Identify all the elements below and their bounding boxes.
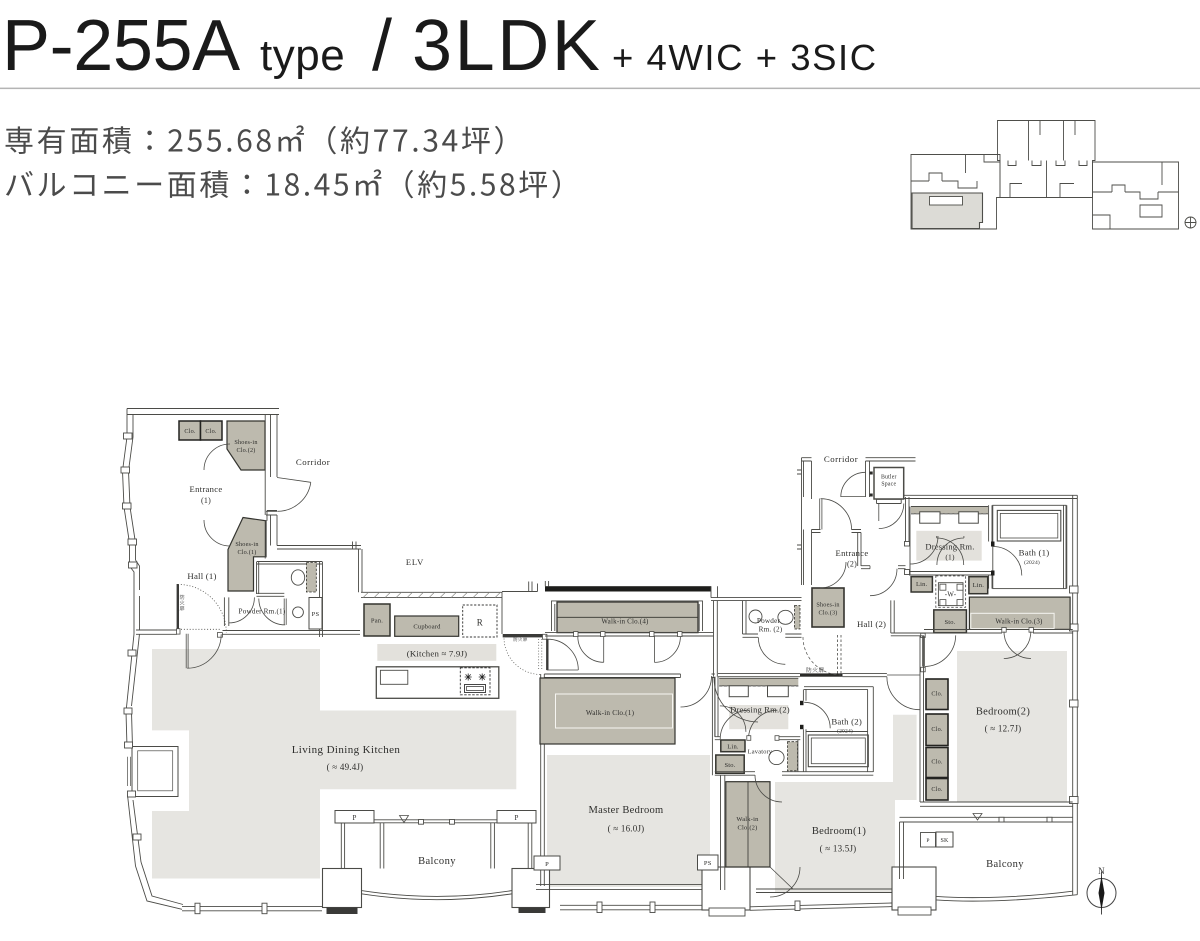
- svg-text:Corridor: Corridor: [824, 454, 858, 464]
- svg-text:Sto.: Sto.: [944, 619, 955, 626]
- svg-text:Clo.: Clo.: [931, 726, 943, 733]
- svg-text:Shoes-in: Shoes-in: [816, 602, 839, 609]
- svg-text:Pan.: Pan.: [371, 618, 383, 625]
- svg-text:Lin.: Lin.: [973, 582, 985, 589]
- svg-text:Corridor: Corridor: [296, 457, 330, 467]
- svg-text:Clo.(3): Clo.(3): [818, 610, 837, 617]
- svg-text:(2024): (2024): [837, 728, 853, 735]
- svg-text:Clo.(2): Clo.(2): [738, 825, 758, 832]
- svg-text:Bedroom(2): Bedroom(2): [976, 707, 1031, 718]
- svg-text:Lavatory: Lavatory: [748, 749, 773, 756]
- svg-text:Clo.: Clo.: [184, 428, 196, 435]
- svg-text:P: P: [545, 861, 549, 868]
- svg-text:Bath (2): Bath (2): [831, 717, 862, 727]
- svg-text:Rm. (2): Rm. (2): [759, 626, 783, 634]
- svg-text:(2): (2): [847, 560, 857, 569]
- svg-text:Cupboard: Cupboard: [413, 624, 441, 631]
- svg-text:Clo.(2): Clo.(2): [236, 447, 255, 454]
- svg-text:Hall (1): Hall (1): [187, 571, 216, 581]
- svg-text:(Kitchen ≈ 7.9J): (Kitchen ≈ 7.9J): [407, 649, 468, 659]
- svg-text:( ≈ 13.5J): ( ≈ 13.5J): [820, 844, 857, 854]
- svg-text:Dressing Rm.(2): Dressing Rm.(2): [730, 705, 790, 715]
- svg-text:Living Dining Kitchen: Living Dining Kitchen: [292, 744, 401, 756]
- svg-text:Sto.: Sto.: [724, 762, 735, 769]
- svg-text:Walk-in Clo.(3): Walk-in Clo.(3): [995, 618, 1043, 626]
- svg-text:P: P: [514, 814, 518, 822]
- svg-text:Clo.: Clo.: [931, 786, 943, 793]
- svg-text:+ 4WIC + 3SIC: + 4WIC + 3SIC: [612, 37, 878, 78]
- svg-text:P: P: [352, 814, 356, 822]
- svg-text:/: /: [372, 6, 392, 86]
- svg-text:Shoes-in: Shoes-in: [235, 541, 258, 548]
- svg-text:Balcony: Balcony: [986, 859, 1024, 870]
- svg-text:P: P: [926, 838, 929, 844]
- svg-text:Powder: Powder: [757, 617, 781, 625]
- svg-text:(1): (1): [201, 496, 211, 505]
- svg-text:ELV: ELV: [406, 557, 424, 567]
- svg-text:Clo.: Clo.: [205, 428, 217, 435]
- svg-text:P-255A: P-255A: [2, 6, 240, 86]
- svg-text:PS: PS: [312, 611, 320, 618]
- svg-text:Balcony: Balcony: [418, 856, 456, 867]
- svg-text:Bath (1): Bath (1): [1019, 548, 1050, 558]
- svg-text:Dressing Rm.: Dressing Rm.: [925, 542, 974, 552]
- svg-text:Lin.: Lin.: [916, 581, 928, 588]
- svg-text:( ≈ 49.4J): ( ≈ 49.4J): [327, 762, 364, 772]
- svg-text:Butler: Butler: [881, 475, 897, 481]
- svg-text:Walk-in Clo.(4): Walk-in Clo.(4): [601, 618, 649, 626]
- svg-text:Walk-in Clo.(1): Walk-in Clo.(1): [586, 709, 635, 717]
- svg-text:Bedroom(1): Bedroom(1): [812, 826, 867, 837]
- svg-text:R: R: [477, 618, 483, 628]
- svg-text:SK: SK: [940, 838, 949, 844]
- svg-text:type: type: [260, 31, 345, 80]
- svg-text:PS: PS: [704, 860, 712, 867]
- svg-text:( ≈ 16.0J): ( ≈ 16.0J): [608, 824, 645, 834]
- svg-text:Walk-in: Walk-in: [736, 816, 759, 823]
- svg-text:Hall (2): Hall (2): [857, 619, 886, 629]
- svg-text:Lin.: Lin.: [727, 744, 739, 751]
- svg-text:Space: Space: [881, 482, 896, 488]
- svg-text:Shoes-in: Shoes-in: [234, 439, 257, 446]
- svg-text:Entrance: Entrance: [190, 484, 223, 494]
- svg-text:Master Bedroom: Master Bedroom: [588, 805, 663, 816]
- svg-text:Clo.(1): Clo.(1): [237, 549, 256, 556]
- svg-text:Clo.: Clo.: [931, 759, 943, 766]
- svg-text:Entrance: Entrance: [836, 548, 869, 558]
- svg-text:-W-: -W-: [945, 591, 957, 599]
- svg-text:3LDK: 3LDK: [412, 6, 603, 86]
- svg-text:Clo.: Clo.: [931, 691, 943, 698]
- svg-text:( ≈ 12.7J): ( ≈ 12.7J): [985, 724, 1022, 734]
- svg-text:(1): (1): [945, 553, 955, 562]
- svg-text:(2024): (2024): [1024, 559, 1040, 566]
